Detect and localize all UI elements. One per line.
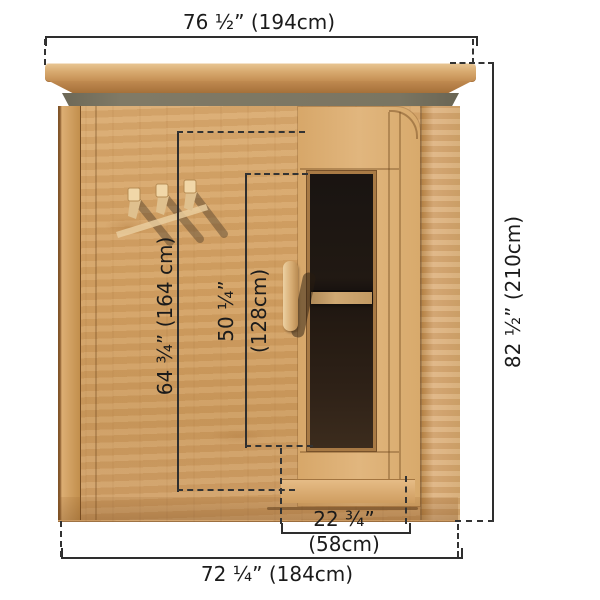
right-dimension-line [492, 64, 494, 522]
wall-plank-seam [95, 106, 97, 520]
roof-fascia [49, 81, 472, 94]
panel-height-label: 64 ¾” (164 cm) [153, 237, 177, 396]
door-handle [283, 261, 298, 331]
extension-line [44, 39, 46, 65]
extension-line [472, 39, 474, 64]
extension-line [457, 524, 459, 557]
overall-height-label: 82 ½” (210cm) [501, 216, 525, 368]
extension-line [450, 62, 494, 64]
door-width-cm-label: (58cm) [308, 532, 380, 556]
left-corner-trim [58, 106, 81, 520]
interior-rail-through-glass [311, 292, 372, 304]
panel-height-dimension-line [177, 132, 179, 492]
extension-line [455, 520, 494, 522]
extension-line [177, 489, 295, 491]
sauna-dimension-diagram: 76 ½” (194cm) 82 ½” (210cm) 72 ¼” (184cm… [0, 0, 600, 600]
roof-top-board [45, 63, 476, 82]
bottom-dimension-line [61, 548, 463, 559]
extension-line [280, 448, 282, 524]
cabin-width-label: 72 ¼” (184cm) [201, 562, 353, 586]
extension-line [405, 476, 407, 524]
door-threshold [281, 479, 415, 503]
extension-line [60, 521, 62, 557]
extension-line [245, 445, 313, 447]
extension-line [177, 131, 305, 133]
door-groove [388, 112, 390, 503]
door-width-inches-label: 22 ¾” [313, 507, 375, 531]
extension-line [245, 173, 308, 175]
right-corner-trim [420, 106, 460, 520]
glass-height-cm-label: (128cm) [247, 269, 271, 353]
door-groove [399, 112, 401, 503]
door-window-glass [310, 174, 373, 448]
top-dimension-line [45, 36, 478, 46]
roof-width-label: 76 ½” (194cm) [183, 10, 335, 34]
glass-height-inches-label: 50 ¼” [214, 280, 238, 342]
